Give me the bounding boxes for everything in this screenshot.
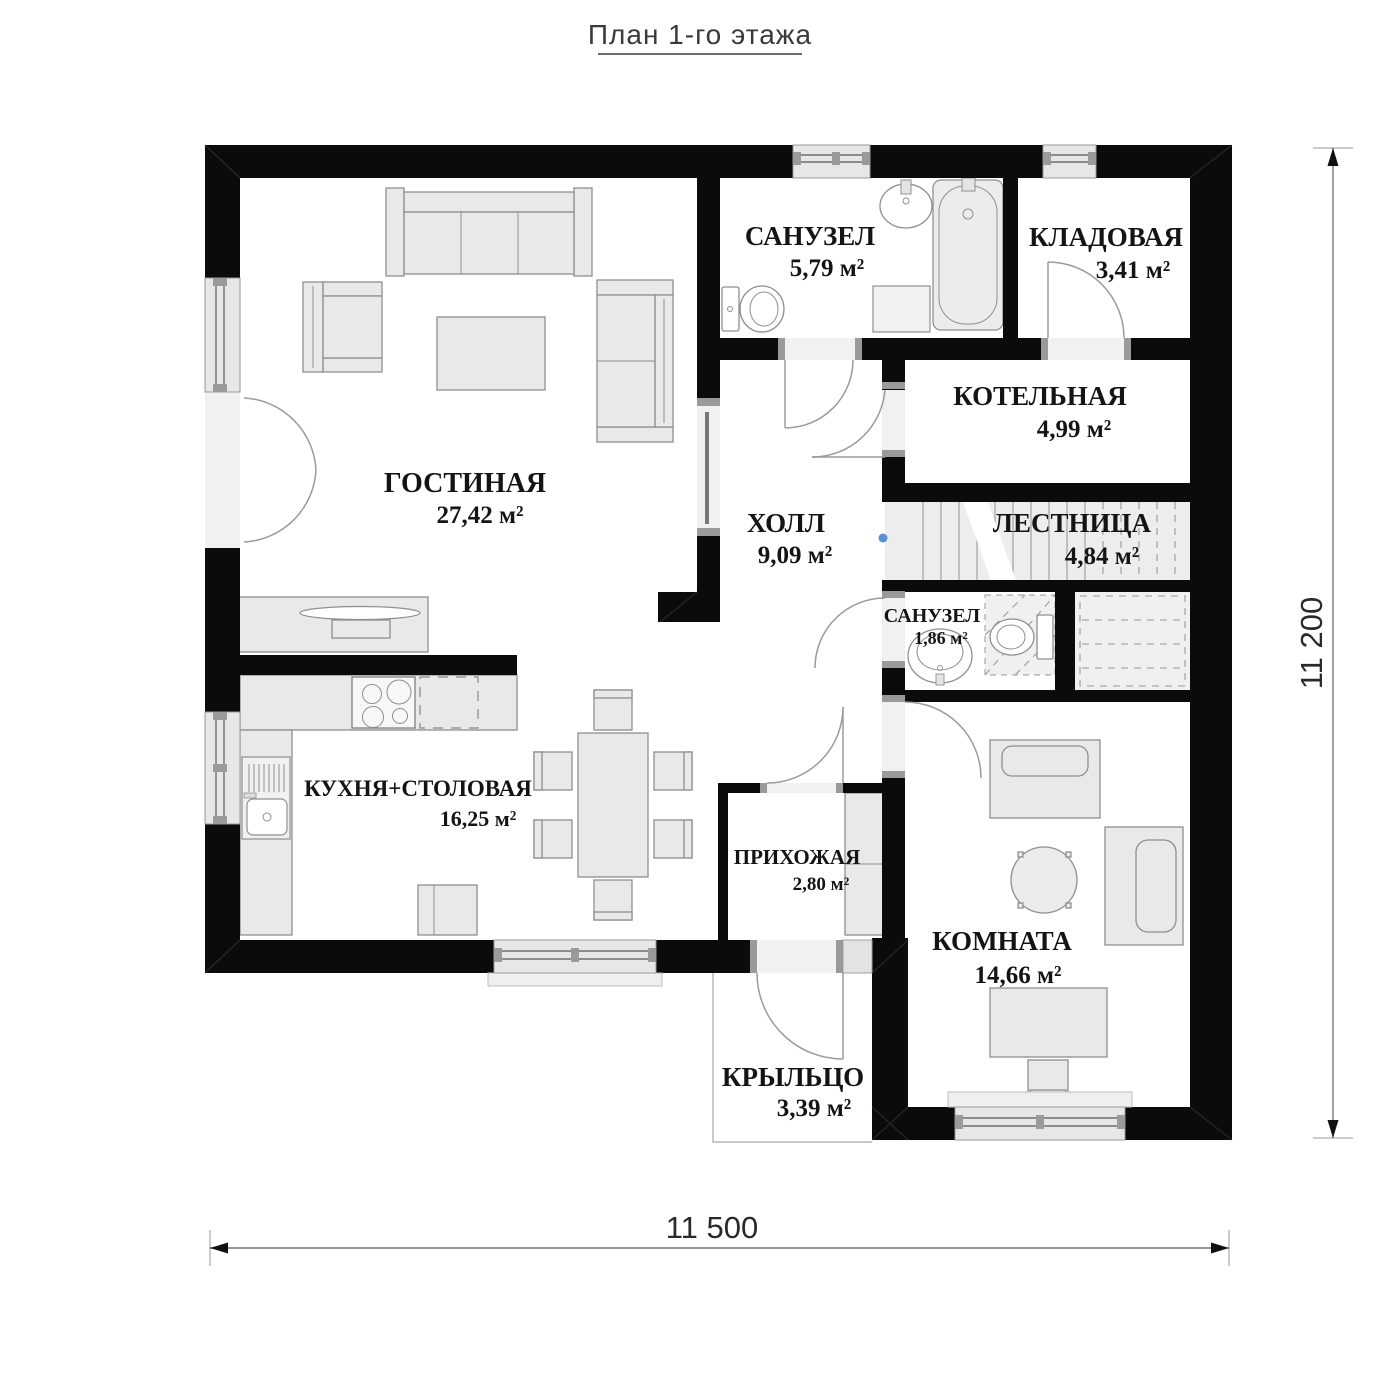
room-area: 16,25 м² bbox=[440, 806, 517, 831]
window bbox=[1043, 145, 1096, 178]
boiler-door-opening bbox=[882, 390, 905, 457]
plan-title: План 1-го этажа bbox=[588, 19, 812, 54]
bathroom1-door-opening bbox=[785, 338, 855, 360]
washing-machine bbox=[873, 286, 930, 332]
dining-chair bbox=[534, 752, 572, 790]
room-label-entry: ПРИХОЖАЯ 2,80 м² bbox=[734, 845, 861, 895]
room-name: КОМНАТА bbox=[932, 926, 1072, 956]
floor-plan-page: План 1-го этажа bbox=[0, 0, 1400, 1400]
entry-door-opening bbox=[767, 783, 843, 793]
room-label-boiler: КОТЕЛЬНАЯ 4,99 м² bbox=[953, 381, 1127, 443]
sofa-right bbox=[1105, 827, 1183, 945]
room-name: КЛАДОВАЯ bbox=[1029, 222, 1184, 252]
dining-chair bbox=[594, 880, 632, 920]
entry-door bbox=[760, 707, 843, 793]
room-area: 14,66 м² bbox=[974, 962, 1061, 989]
room-name: САНУЗЕЛ bbox=[884, 605, 980, 627]
toilet bbox=[722, 286, 784, 332]
page-title: План 1-го этажа bbox=[588, 19, 812, 50]
room-area: 2,80 м² bbox=[793, 874, 850, 895]
room-area: 4,84 м² bbox=[1065, 543, 1140, 570]
living-room-furniture bbox=[238, 188, 673, 652]
window bbox=[948, 1092, 1132, 1140]
french-door-opening bbox=[205, 392, 240, 548]
dimension-bottom: 11 500 bbox=[210, 1210, 1229, 1266]
toilet bbox=[990, 615, 1053, 659]
dining-table bbox=[578, 733, 648, 877]
stair-start-marker bbox=[879, 534, 888, 543]
bedroom-door-opening bbox=[882, 702, 905, 778]
room-name: САНУЗЕЛ bbox=[745, 221, 875, 251]
room-label-bath1: САНУЗЕЛ 5,79 м² bbox=[745, 221, 875, 282]
room-area: 5,79 м² bbox=[790, 255, 865, 282]
kitchen-counters bbox=[240, 675, 517, 935]
bathroom-sink bbox=[880, 180, 932, 228]
stove bbox=[352, 677, 415, 728]
room-area: 9,09 м² bbox=[758, 542, 833, 569]
window bbox=[793, 145, 870, 178]
room-name: КРЫЛЬЦО bbox=[722, 1062, 864, 1092]
armchair bbox=[303, 282, 382, 372]
kitchen-cabinet-bottom bbox=[418, 885, 477, 935]
dining-chair bbox=[654, 820, 692, 858]
room-name: ПРИХОЖАЯ bbox=[734, 845, 861, 869]
room-name: КУХНЯ+СТОЛОВАЯ bbox=[304, 776, 532, 801]
room-area: 3,39 м² bbox=[777, 1095, 852, 1122]
coffee-table bbox=[437, 317, 545, 390]
dimension-right: 11 200 bbox=[1294, 148, 1353, 1138]
sofa bbox=[386, 188, 592, 276]
room-name: ГОСТИНАЯ bbox=[384, 468, 546, 499]
room-area: 4,99 м² bbox=[1037, 416, 1112, 443]
window bbox=[205, 712, 240, 824]
room-label-hall: ХОЛЛ 9,09 м² bbox=[747, 508, 832, 569]
room-area: 1,86 м² bbox=[914, 628, 968, 648]
understair-area bbox=[1075, 592, 1190, 690]
sofa-top bbox=[990, 740, 1100, 818]
room-label-room: КОМНАТА 14,66 м² bbox=[932, 926, 1072, 989]
dining-chair bbox=[534, 820, 572, 858]
tv-screen bbox=[300, 607, 420, 620]
window bbox=[205, 278, 240, 392]
dimension-height-label: 11 200 bbox=[1294, 597, 1329, 690]
room-label-kitchen: КУХНЯ+СТОЛОВАЯ 16,25 м² bbox=[304, 776, 532, 831]
dimension-width-label: 11 500 bbox=[666, 1210, 759, 1245]
room-area: 3,41 м² bbox=[1096, 257, 1171, 284]
window bbox=[488, 940, 662, 986]
room-name: ХОЛЛ bbox=[747, 508, 825, 538]
room-name: КОТЕЛЬНАЯ bbox=[953, 381, 1127, 411]
dining-set bbox=[534, 690, 692, 920]
room-name: ЛЕСТНИЦА bbox=[993, 508, 1152, 538]
tv-console bbox=[238, 597, 428, 652]
bathtub bbox=[933, 178, 1003, 330]
room-label-living: ГОСТИНАЯ 27,42 м² bbox=[384, 468, 546, 529]
desk bbox=[990, 988, 1107, 1057]
entrance-sidelight bbox=[843, 940, 872, 973]
room-area: 27,42 м² bbox=[436, 502, 523, 529]
bedroom-furniture bbox=[990, 740, 1183, 1098]
floor-plan-drawing: План 1-го этажа bbox=[0, 0, 1400, 1400]
entrance-door-opening bbox=[757, 940, 843, 973]
dining-chair bbox=[654, 752, 692, 790]
kitchen-sink bbox=[242, 757, 290, 839]
french-door bbox=[244, 398, 316, 542]
room-label-porch: КРЫЛЬЦО 3,39 м² bbox=[722, 1062, 864, 1122]
storage-door-opening bbox=[1048, 338, 1124, 360]
dining-chair bbox=[594, 690, 632, 730]
room-label-storage: КЛАДОВАЯ 3,41 м² bbox=[1029, 222, 1184, 284]
sliding-door-panel bbox=[705, 412, 709, 524]
loveseat bbox=[597, 280, 673, 442]
round-table bbox=[1011, 847, 1077, 913]
